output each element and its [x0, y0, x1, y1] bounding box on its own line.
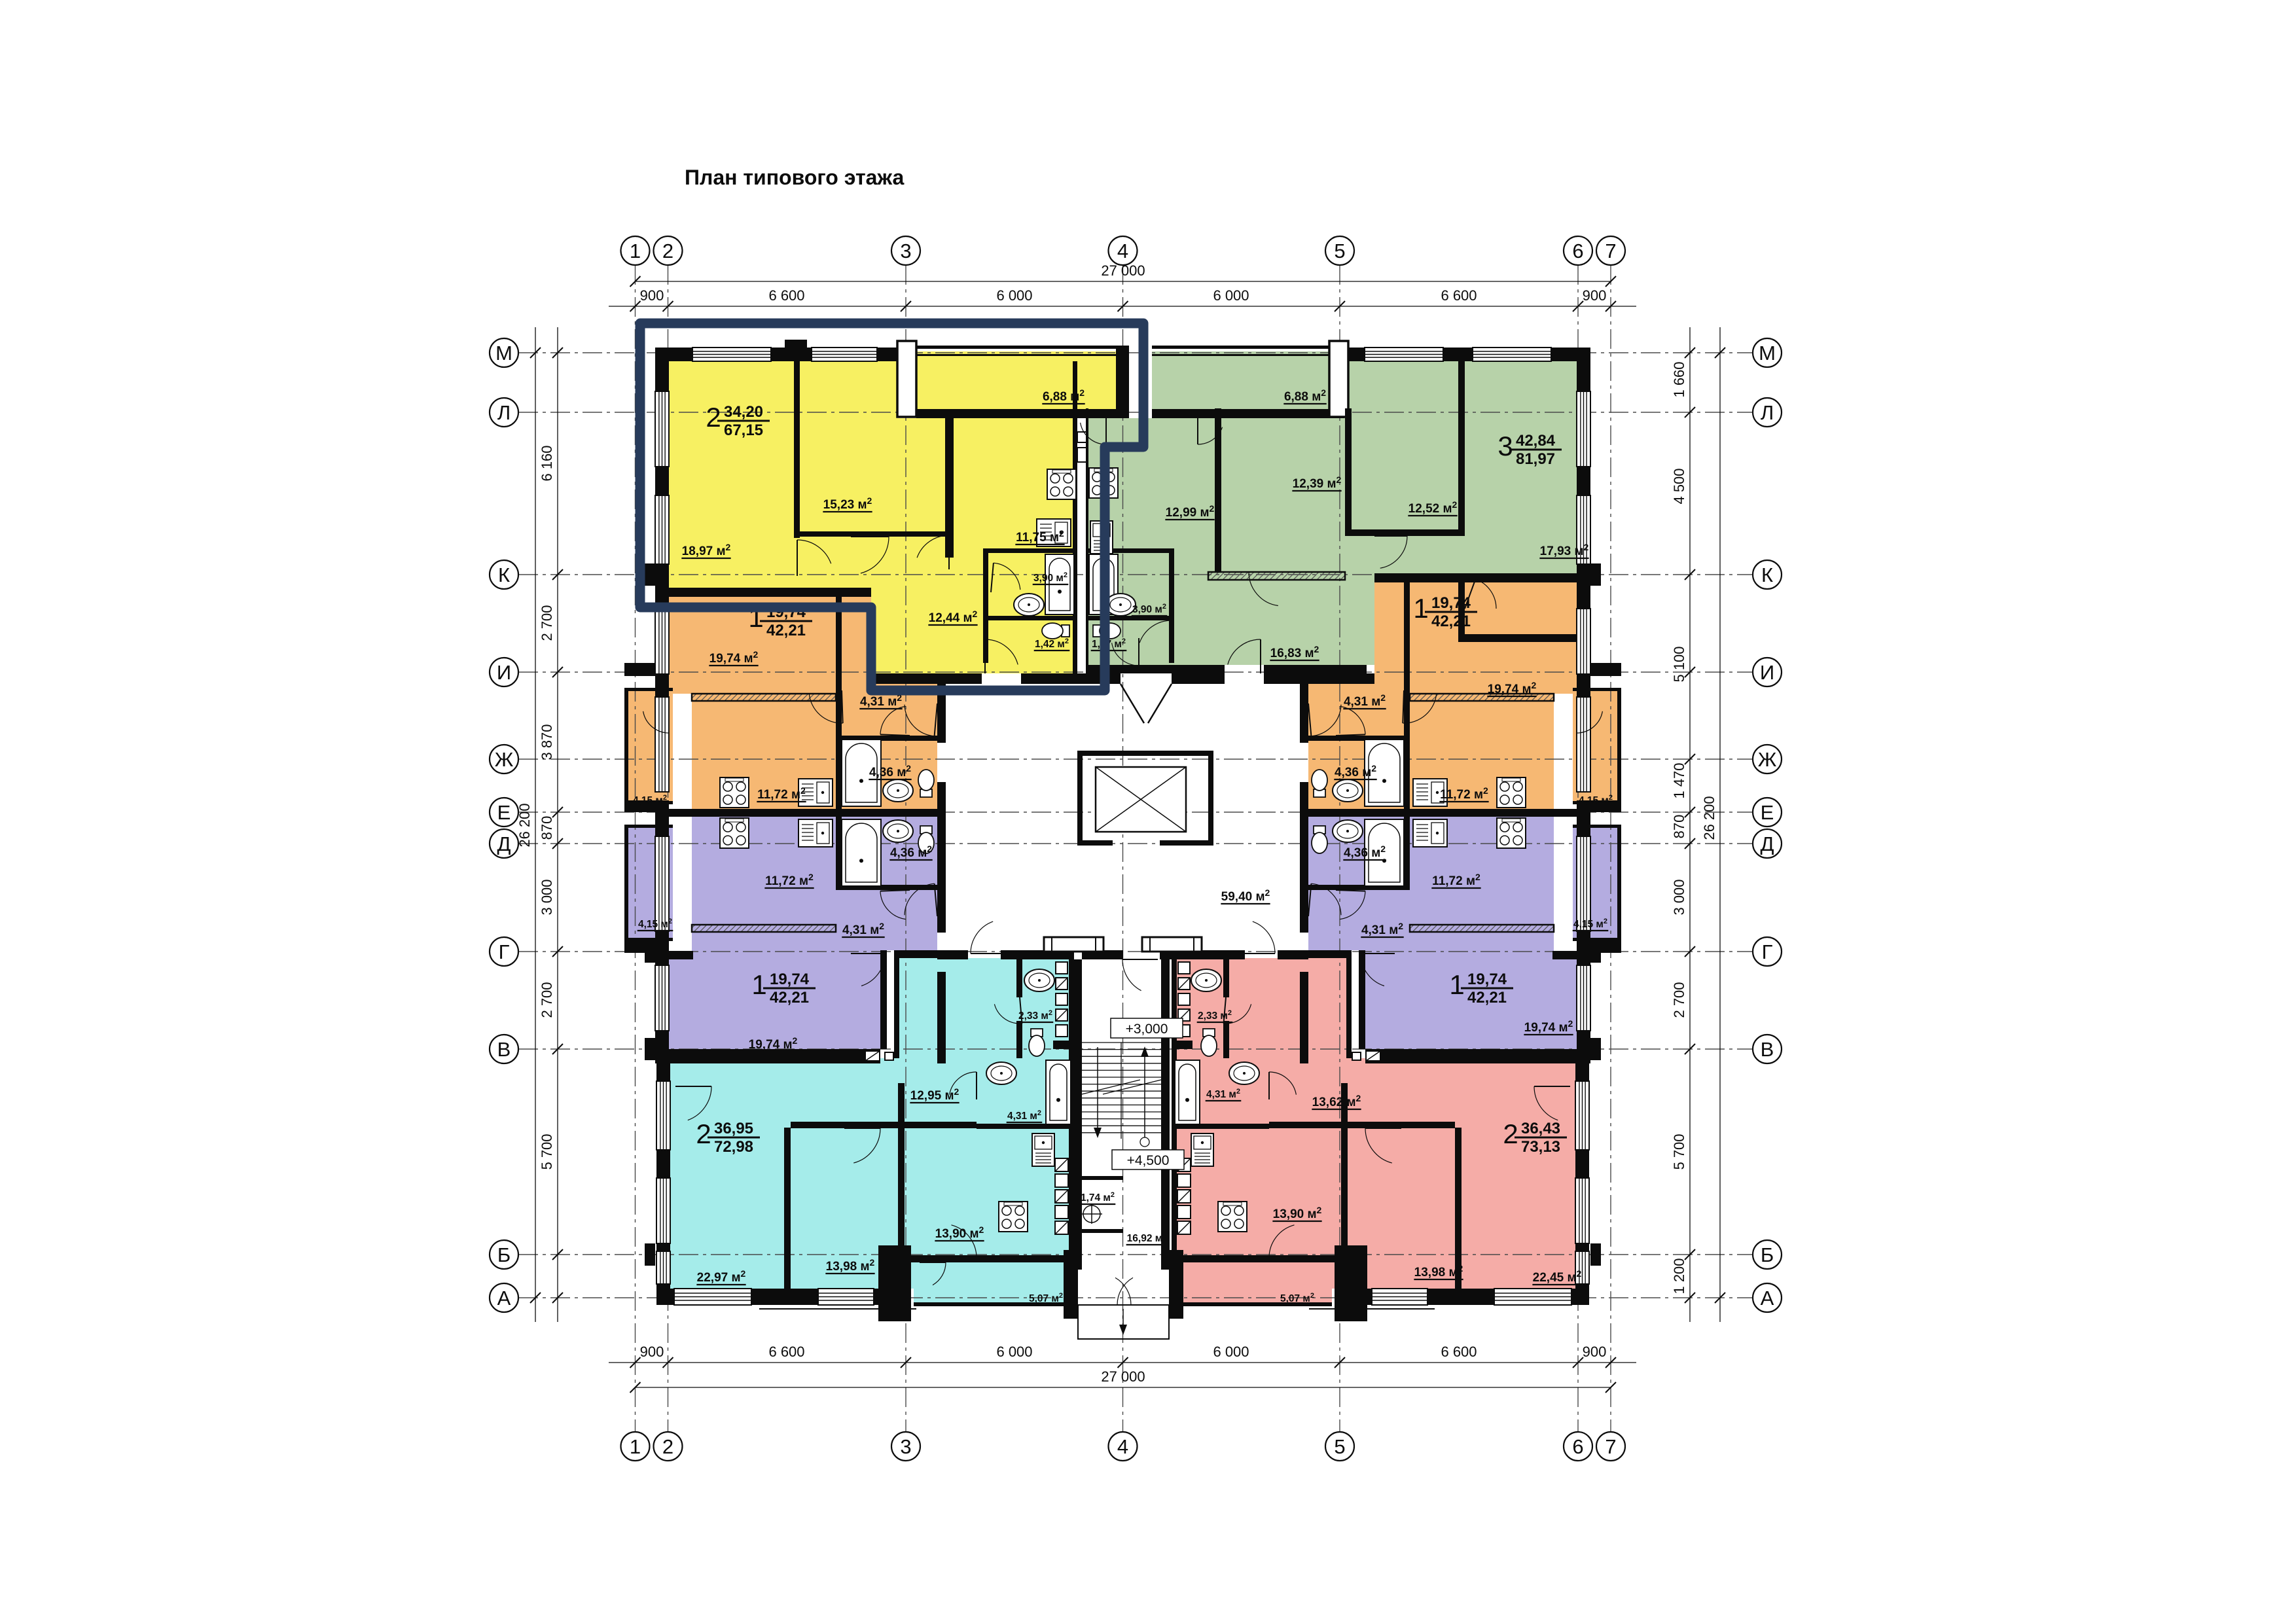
- svg-text:19,74: 19,74: [1431, 594, 1471, 612]
- svg-text:1: 1: [630, 240, 641, 262]
- svg-text:6 000: 6 000: [1213, 287, 1249, 304]
- svg-text:19,74 м2: 19,74 м2: [1488, 680, 1537, 696]
- svg-text:4 500: 4 500: [1671, 468, 1687, 504]
- svg-text:А: А: [497, 1287, 511, 1310]
- svg-text:7: 7: [1605, 1435, 1616, 1458]
- svg-text:И: И: [1760, 661, 1774, 684]
- svg-text:19,74 м2: 19,74 м2: [709, 649, 759, 666]
- svg-text:6 000: 6 000: [996, 287, 1032, 304]
- svg-text:6: 6: [1572, 1435, 1583, 1458]
- svg-text:42,21: 42,21: [766, 622, 806, 639]
- svg-text:15,23 м2: 15,23 м2: [823, 495, 872, 512]
- svg-text:2: 2: [1503, 1118, 1518, 1149]
- svg-text:2: 2: [662, 1435, 673, 1458]
- svg-text:3,90 м2: 3,90 м2: [1033, 571, 1067, 584]
- svg-text:2: 2: [706, 402, 721, 433]
- svg-text:В: В: [1761, 1038, 1774, 1061]
- svg-text:Г: Г: [1762, 940, 1773, 963]
- svg-text:1 470: 1 470: [1671, 762, 1687, 798]
- svg-text:3: 3: [1498, 431, 1513, 461]
- svg-text:6 600: 6 600: [768, 287, 804, 304]
- svg-text:19,74: 19,74: [770, 971, 810, 988]
- svg-text:42,84: 42,84: [1516, 432, 1556, 450]
- svg-text:Ж: Ж: [495, 748, 514, 771]
- svg-text:16,83 м2: 16,83 м2: [1270, 644, 1319, 660]
- svg-text:2 700: 2 700: [539, 982, 555, 1018]
- svg-text:870: 870: [539, 816, 555, 840]
- svg-text:11,72 м2: 11,72 м2: [1432, 872, 1480, 888]
- svg-text:81,97: 81,97: [1516, 450, 1555, 468]
- svg-text:5,07 м2: 5,07 м2: [1280, 1292, 1314, 1304]
- svg-text:4,15 м2: 4,15 м2: [638, 918, 672, 930]
- svg-text:11,75 м2: 11,75 м2: [1016, 528, 1064, 544]
- svg-text:4,36 м2: 4,36 м2: [1344, 844, 1386, 860]
- svg-text:2 700: 2 700: [539, 605, 555, 641]
- svg-text:4,31 м2: 4,31 м2: [1206, 1088, 1240, 1100]
- svg-text:13,90 м2: 13,90 м2: [1273, 1205, 1322, 1221]
- svg-text:22,97 м2: 22,97 м2: [697, 1268, 746, 1285]
- svg-text:11,72 м2: 11,72 м2: [757, 785, 806, 802]
- svg-text:6 600: 6 600: [768, 1344, 804, 1360]
- svg-text:Е: Е: [497, 801, 511, 824]
- svg-text:+4,500: +4,500: [1127, 1153, 1170, 1168]
- svg-text:3,90 м2: 3,90 м2: [1132, 603, 1166, 615]
- svg-text:6 000: 6 000: [1213, 1344, 1249, 1360]
- svg-text:3 870: 3 870: [539, 724, 555, 760]
- svg-text:900: 900: [640, 1344, 664, 1360]
- svg-text:И: И: [497, 661, 511, 684]
- svg-text:5 100: 5 100: [1671, 646, 1687, 682]
- svg-text:4: 4: [1117, 240, 1128, 262]
- svg-text:67,15: 67,15: [724, 421, 763, 439]
- svg-text:4,36 м2: 4,36 м2: [890, 844, 932, 860]
- svg-text:Д: Д: [1761, 832, 1774, 855]
- svg-text:36,43: 36,43: [1521, 1120, 1560, 1137]
- svg-text:6 600: 6 600: [1441, 1344, 1477, 1360]
- svg-text:11,72 м2: 11,72 м2: [765, 872, 814, 888]
- svg-text:2: 2: [662, 240, 673, 262]
- svg-text:2,33 м2: 2,33 м2: [1198, 1009, 1232, 1022]
- svg-text:6,88 м2: 6,88 м2: [1284, 387, 1326, 404]
- svg-text:13,90 м2: 13,90 м2: [935, 1224, 984, 1241]
- svg-text:42,21: 42,21: [1467, 989, 1507, 1007]
- svg-text:34,20: 34,20: [724, 403, 763, 421]
- svg-text:Е: Е: [1761, 801, 1774, 824]
- svg-text:27 000: 27 000: [1101, 1368, 1145, 1385]
- svg-text:Г: Г: [499, 940, 510, 963]
- svg-text:12,39 м2: 12,39 м2: [1293, 474, 1342, 491]
- svg-text:13,62 м2: 13,62 м2: [1312, 1093, 1361, 1109]
- svg-text:42,21: 42,21: [1431, 613, 1471, 630]
- svg-text:4,31 м2: 4,31 м2: [1344, 692, 1386, 709]
- svg-text:1: 1: [630, 1435, 641, 1458]
- svg-text:13,98 м2: 13,98 м2: [826, 1257, 875, 1274]
- svg-text:4,15 м2: 4,15 м2: [633, 794, 667, 806]
- svg-text:1,74 м2: 1,74 м2: [1081, 1191, 1115, 1204]
- svg-text:18,97 м2: 18,97 м2: [682, 542, 731, 558]
- svg-text:6 000: 6 000: [996, 1344, 1032, 1360]
- svg-text:19,74 м2: 19,74 м2: [1524, 1018, 1573, 1035]
- svg-text:2 700: 2 700: [1671, 982, 1687, 1018]
- svg-text:4: 4: [1117, 1435, 1128, 1458]
- svg-text:В: В: [497, 1038, 511, 1061]
- svg-text:4,15 м2: 4,15 м2: [1573, 918, 1607, 930]
- svg-text:Л: Л: [1761, 401, 1774, 424]
- svg-text:22,45 м2: 22,45 м2: [1533, 1268, 1582, 1285]
- svg-text:3: 3: [900, 1435, 911, 1458]
- svg-text:Б: Б: [497, 1243, 511, 1266]
- svg-text:5: 5: [1334, 1435, 1345, 1458]
- svg-text:42,21: 42,21: [770, 989, 809, 1007]
- svg-text:М: М: [495, 342, 512, 365]
- svg-text:11,72 м2: 11,72 м2: [1440, 785, 1488, 802]
- svg-text:900: 900: [1583, 1344, 1607, 1360]
- svg-text:1,42 м2: 1,42 м2: [1035, 637, 1069, 650]
- svg-text:М: М: [1759, 342, 1776, 365]
- svg-text:+3,000: +3,000: [1126, 1022, 1168, 1037]
- svg-text:5: 5: [1334, 240, 1345, 262]
- svg-text:12,99 м2: 12,99 м2: [1166, 503, 1215, 520]
- svg-text:59,40 м2: 59,40 м2: [1221, 887, 1270, 904]
- svg-text:13,98 м2: 13,98 м2: [1414, 1263, 1463, 1279]
- svg-text:Л: Л: [497, 401, 511, 424]
- svg-text:6 160: 6 160: [539, 445, 555, 481]
- svg-text:5 700: 5 700: [539, 1133, 555, 1169]
- svg-text:К: К: [498, 563, 510, 586]
- svg-text:4,36 м2: 4,36 м2: [1335, 763, 1376, 779]
- svg-text:26 200: 26 200: [1701, 796, 1717, 840]
- svg-text:4,36 м2: 4,36 м2: [869, 763, 911, 779]
- svg-text:3 000: 3 000: [539, 879, 555, 915]
- svg-text:12,95 м2: 12,95 м2: [910, 1086, 960, 1103]
- svg-text:17,93 м2: 17,93 м2: [1540, 542, 1589, 558]
- svg-text:5 700: 5 700: [1671, 1133, 1687, 1169]
- svg-text:5,07 м2: 5,07 м2: [1029, 1292, 1063, 1304]
- svg-text:3: 3: [900, 240, 911, 262]
- svg-text:12,44 м2: 12,44 м2: [929, 609, 978, 625]
- svg-text:19,74: 19,74: [1467, 971, 1507, 988]
- svg-text:72,98: 72,98: [714, 1138, 753, 1156]
- svg-text:7: 7: [1605, 240, 1616, 262]
- svg-text:4,31 м2: 4,31 м2: [1007, 1109, 1041, 1122]
- svg-text:16,92 м2: 16,92 м2: [1127, 1232, 1167, 1244]
- svg-text:6 600: 6 600: [1441, 287, 1477, 304]
- svg-text:6,88 м2: 6,88 м2: [1043, 387, 1085, 404]
- svg-text:12,52 м2: 12,52 м2: [1408, 499, 1458, 516]
- svg-text:2: 2: [696, 1118, 711, 1149]
- svg-text:6: 6: [1572, 240, 1583, 262]
- svg-text:4,31 м2: 4,31 м2: [842, 921, 884, 937]
- svg-text:3 000: 3 000: [1671, 879, 1687, 915]
- svg-text:900: 900: [640, 287, 664, 304]
- svg-text:1 200: 1 200: [1671, 1258, 1687, 1294]
- svg-text:4,15 м2: 4,15 м2: [1579, 794, 1613, 806]
- svg-text:А: А: [1761, 1287, 1774, 1310]
- svg-text:2,33 м2: 2,33 м2: [1018, 1009, 1052, 1022]
- svg-text:Б: Б: [1761, 1243, 1774, 1266]
- svg-text:4,31 м2: 4,31 м2: [1361, 921, 1403, 937]
- svg-text:900: 900: [1583, 287, 1607, 304]
- svg-text:1 660: 1 660: [1671, 361, 1687, 397]
- svg-text:1: 1: [1413, 593, 1428, 624]
- svg-text:1: 1: [1449, 969, 1464, 1000]
- svg-text:Ж: Ж: [1758, 748, 1777, 771]
- svg-text:36,95: 36,95: [714, 1120, 753, 1137]
- svg-text:73,13: 73,13: [1521, 1138, 1560, 1156]
- svg-text:К: К: [1761, 563, 1773, 586]
- svg-text:Д: Д: [497, 832, 511, 855]
- svg-text:19,74 м2: 19,74 м2: [749, 1035, 798, 1052]
- svg-text:870: 870: [1671, 815, 1687, 839]
- svg-text:План типового этажа: План типового этажа: [685, 166, 905, 189]
- svg-text:1: 1: [751, 969, 766, 1000]
